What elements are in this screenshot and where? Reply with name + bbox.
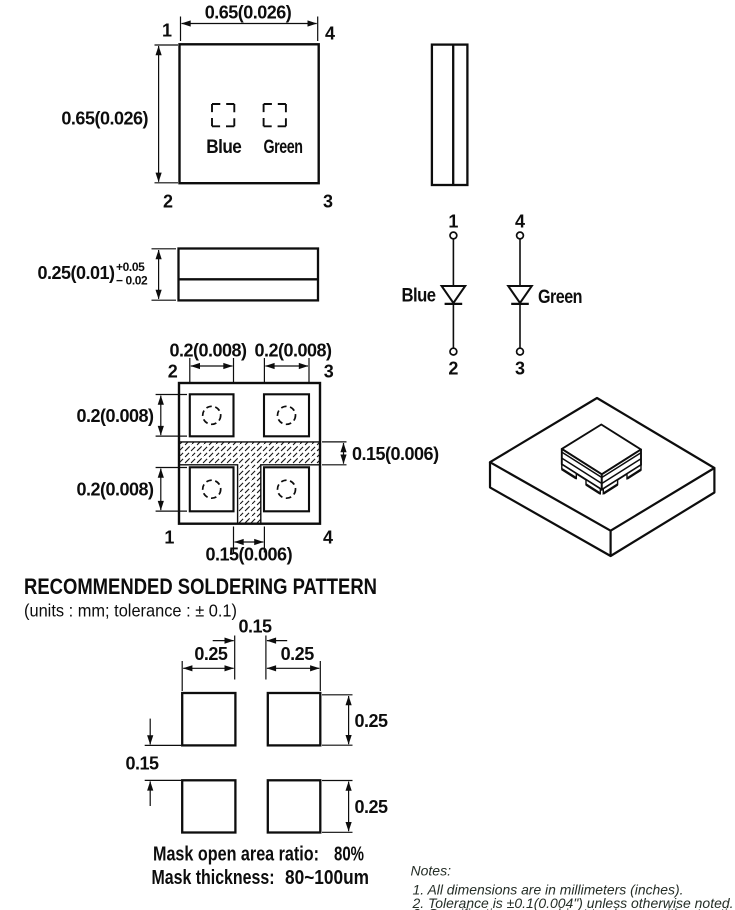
svg-text:3. Specifications are subject: 3. Specifications are subject to change … bbox=[413, 906, 735, 910]
svg-text:RECOMMENDED SOLDERING PATTERN: RECOMMENDED SOLDERING PATTERN bbox=[24, 574, 377, 599]
svg-text:Blue: Blue bbox=[206, 137, 241, 158]
svg-text:0.2(0.008): 0.2(0.008) bbox=[76, 406, 154, 426]
svg-text:4: 4 bbox=[325, 24, 335, 44]
svg-text:Notes:: Notes: bbox=[411, 863, 452, 879]
svg-text:3: 3 bbox=[324, 362, 334, 382]
svg-text:0.65(0.026): 0.65(0.026) bbox=[61, 109, 148, 129]
svg-text:1: 1 bbox=[162, 21, 172, 41]
svg-text:0.25: 0.25 bbox=[281, 644, 315, 664]
svg-text:0.15(0.006): 0.15(0.006) bbox=[352, 444, 439, 464]
svg-text:(units : mm; tolerance : ± 0.1: (units : mm; tolerance : ± 0.1) bbox=[24, 601, 237, 621]
svg-text:Mask open area ratio:: Mask open area ratio: bbox=[153, 844, 319, 866]
svg-text:3: 3 bbox=[323, 192, 333, 212]
svg-text:80%: 80% bbox=[334, 844, 364, 866]
svg-text:4: 4 bbox=[515, 212, 525, 232]
svg-text:1: 1 bbox=[448, 212, 458, 232]
svg-text:0.65(0.026): 0.65(0.026) bbox=[205, 3, 292, 23]
svg-text:Green: Green bbox=[264, 137, 303, 158]
svg-text:Mask thickness:: Mask thickness: bbox=[152, 867, 275, 889]
svg-text:0.25: 0.25 bbox=[355, 711, 389, 731]
svg-text:2: 2 bbox=[168, 362, 178, 382]
svg-text:0.25: 0.25 bbox=[194, 644, 228, 664]
svg-text:0.15: 0.15 bbox=[125, 754, 159, 774]
svg-text:1: 1 bbox=[164, 528, 174, 548]
svg-text:+0.05: +0.05 bbox=[116, 260, 145, 274]
svg-text:0.25: 0.25 bbox=[355, 797, 389, 817]
svg-text:0.25(0.01): 0.25(0.01) bbox=[37, 263, 115, 283]
svg-text:0.15: 0.15 bbox=[238, 617, 272, 637]
svg-text:0.2(0.008): 0.2(0.008) bbox=[254, 340, 332, 360]
svg-text:80~100um: 80~100um bbox=[285, 867, 369, 889]
svg-text:3: 3 bbox=[515, 359, 525, 379]
svg-text:2: 2 bbox=[448, 359, 458, 379]
svg-text:0.2(0.008): 0.2(0.008) bbox=[76, 480, 154, 500]
svg-text:− 0.02: − 0.02 bbox=[116, 274, 148, 288]
svg-text:Green: Green bbox=[538, 287, 582, 308]
svg-text:4: 4 bbox=[323, 528, 333, 548]
svg-text:0.15(0.006): 0.15(0.006) bbox=[206, 544, 293, 564]
svg-text:Blue: Blue bbox=[402, 286, 436, 307]
svg-text:0.2(0.008): 0.2(0.008) bbox=[169, 340, 247, 360]
svg-text:2: 2 bbox=[163, 192, 173, 212]
